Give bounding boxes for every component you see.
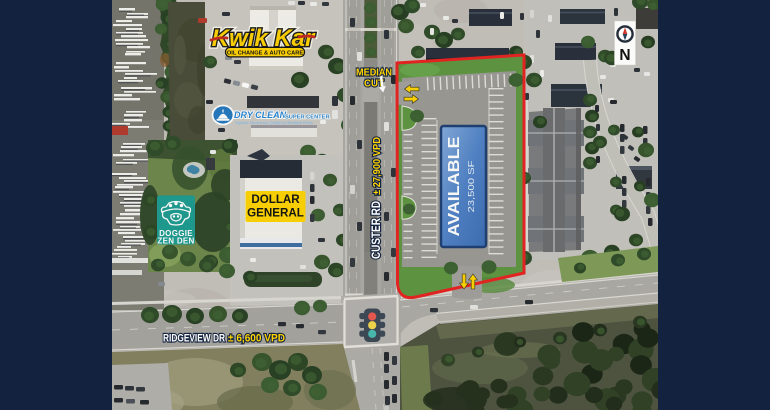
- svg-text:RIDGEVIEW DR: RIDGEVIEW DR: [163, 333, 225, 345]
- svg-text:± 6,600 VPD: ± 6,600 VPD: [228, 333, 285, 345]
- svg-text:N: N: [619, 47, 630, 64]
- svg-text:± 27,900 VPD: ± 27,900 VPD: [371, 137, 383, 195]
- svg-text:CUSTER RD: CUSTER RD: [371, 201, 383, 259]
